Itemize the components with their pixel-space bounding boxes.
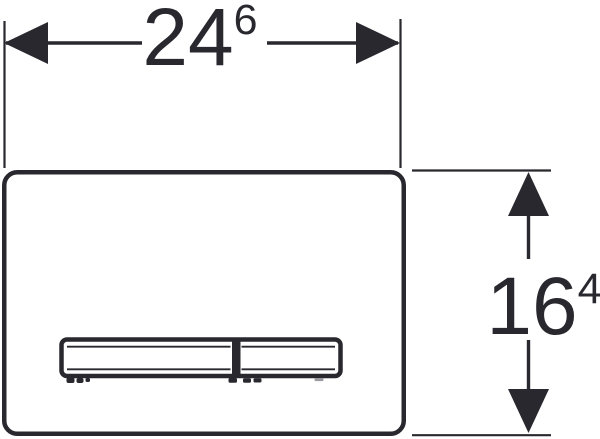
flush-plate (4, 172, 404, 434)
bottom-mark (254, 378, 262, 382)
flush-plate-outline (4, 172, 404, 434)
width-arrowhead-left-icon (4, 22, 48, 64)
height-arrowhead-down-icon (508, 389, 549, 433)
button-divider (232, 338, 241, 378)
button-group-frame (62, 340, 341, 377)
bottom-mark (243, 378, 251, 383)
bottom-mark (77, 378, 84, 383)
bottom-mark-faint (315, 378, 324, 381)
technical-drawing: 246 164 (0, 0, 600, 439)
height-dimension-value: 16 (486, 261, 577, 352)
bottom-mark (229, 378, 238, 383)
height-dimension-label: 164 (444, 266, 600, 348)
bottom-mark (67, 378, 75, 384)
height-arrowhead-up-icon (508, 172, 549, 216)
button-group (62, 338, 341, 384)
height-dimension-superscript: 4 (578, 265, 600, 313)
width-dimension-label: 246 (100, 0, 300, 79)
bottom-mark (86, 378, 91, 382)
width-dimension-value: 24 (142, 0, 233, 83)
width-dimension-superscript: 6 (234, 0, 258, 44)
width-arrowhead-right-icon (356, 22, 400, 64)
drawing-svg (0, 0, 600, 439)
